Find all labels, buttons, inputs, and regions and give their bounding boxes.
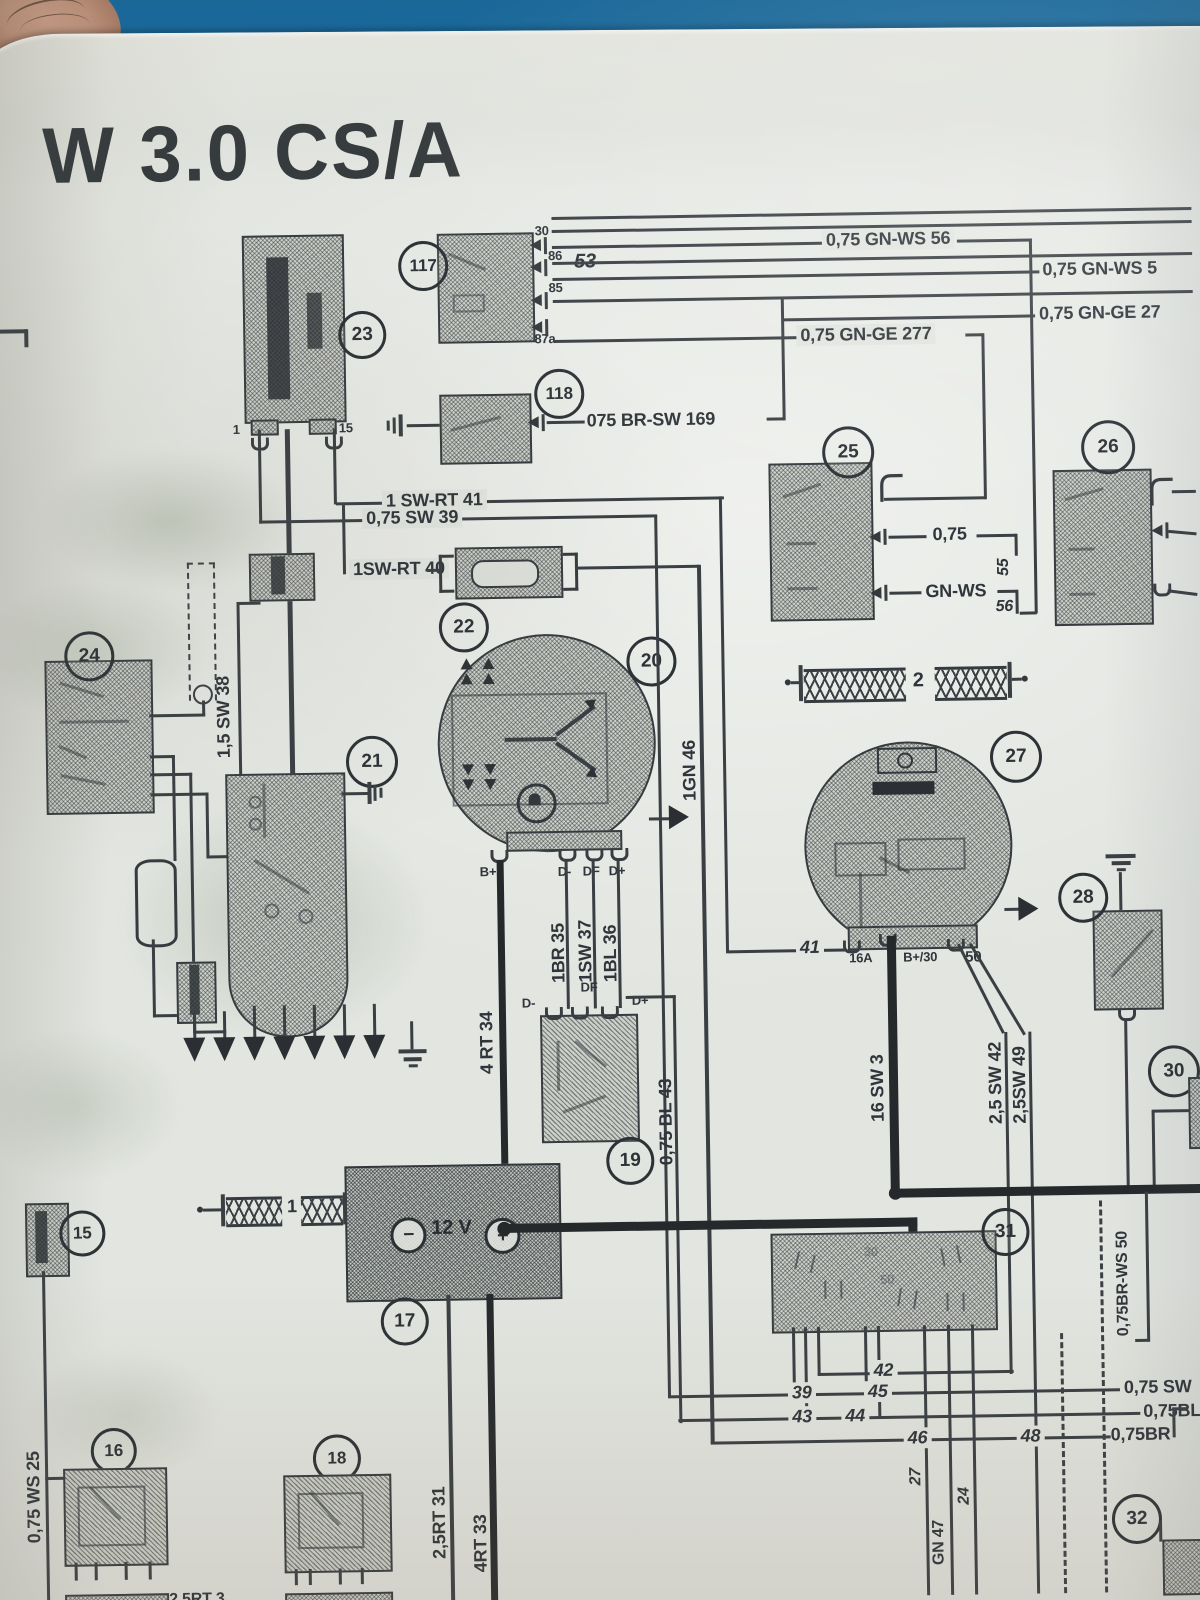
- hook-connector-icon: [875, 469, 906, 505]
- photo-of-wiring-diagram: W 3.0 CS/A 23 1 15 117 30 86 85 87a 53: [0, 0, 1200, 1600]
- plug-bar: [884, 585, 887, 601]
- ground-triangle-icon: [669, 805, 689, 829]
- spark-arrow-icon: [243, 1037, 265, 1061]
- internal-prong: [897, 1288, 918, 1309]
- battery-voltage: 12 V: [431, 1216, 472, 1240]
- wire: [1172, 490, 1196, 493]
- wire: [889, 591, 921, 595]
- spark-arrow-icon: [213, 1037, 235, 1061]
- internal-detail: [249, 796, 262, 809]
- fuse-bracket: [221, 1194, 225, 1226]
- wire-thick: [887, 936, 900, 1198]
- component-number-32: 32: [1112, 1494, 1163, 1545]
- wire: [0, 329, 27, 333]
- wire: [342, 504, 346, 574]
- ground-icon: [404, 1057, 422, 1061]
- wire: [547, 421, 585, 425]
- wire: [553, 290, 1193, 303]
- wire: [193, 1012, 196, 1040]
- wire-label: 0,75 GN-GE 277: [796, 323, 936, 346]
- wire-number-46: 46: [904, 1427, 932, 1448]
- wire-label: 4RT 33: [469, 1486, 491, 1572]
- component-number-15: 15: [59, 1210, 106, 1257]
- wire: [783, 314, 1035, 321]
- dashed-wire: [1099, 1200, 1108, 1592]
- wire-label: 1,5 SW 38: [212, 642, 235, 758]
- wire-number-56: 56: [996, 598, 1014, 616]
- wire-label: 0,75: [932, 524, 967, 546]
- terminal-faint-50: 50: [880, 1272, 894, 1287]
- wire-number-42: 42: [869, 1360, 897, 1381]
- wire: [1124, 1020, 1130, 1192]
- wire: [552, 242, 827, 249]
- winding-arrow-icon: [460, 658, 472, 669]
- connector-core: [189, 965, 200, 1015]
- wire-label: 16 SW 3: [866, 1038, 888, 1122]
- terminal-label-df: DF: [580, 979, 597, 994]
- wire-label: 0,75BR: [1110, 1423, 1170, 1445]
- wire-number-45: 45: [864, 1381, 892, 1402]
- wire: [1012, 678, 1022, 681]
- wire-label: 2,5SW 49: [1008, 1036, 1030, 1124]
- wire: [626, 995, 676, 999]
- winding-arrow-icon: [461, 673, 473, 684]
- connector-core: [35, 1211, 48, 1263]
- wire: [1154, 1109, 1189, 1113]
- wire: [407, 424, 440, 428]
- wire-label: 1BL 36: [599, 898, 621, 982]
- terminal-label-bplus: B+: [480, 864, 497, 879]
- wire-label: 2,5RT 31: [428, 1451, 451, 1559]
- wire: [781, 297, 786, 420]
- ground-icon: [1112, 861, 1131, 865]
- wire: [1015, 590, 1018, 614]
- component-19-regulator: [540, 1014, 640, 1144]
- spark-arrow-icon: [273, 1036, 295, 1060]
- wire: [172, 755, 177, 861]
- terminal-label-dminus: D-: [522, 995, 536, 1010]
- wire-label: 4 RT 34: [476, 988, 498, 1074]
- ground-icon: [399, 414, 403, 436]
- wire-number-27: 27: [907, 1447, 926, 1485]
- wire: [313, 1005, 317, 1038]
- plug-arrow-icon: [531, 294, 542, 306]
- component-number-31: 31: [981, 1208, 1030, 1257]
- winding-arrow-icon: [483, 673, 495, 684]
- wire: [236, 602, 242, 776]
- terminal-label-bplus30: B+/30: [903, 949, 937, 965]
- plug-arrow-icon: [530, 239, 541, 251]
- wire: [341, 792, 367, 795]
- internal-detail: [897, 838, 965, 871]
- internal-prong: [824, 1281, 842, 1299]
- component-number-17: 17: [380, 1297, 429, 1346]
- wire: [253, 1006, 257, 1039]
- wire: [719, 496, 729, 953]
- wire: [373, 1004, 377, 1037]
- wire: [283, 1005, 287, 1038]
- component-number-19: 19: [606, 1137, 655, 1186]
- internal-detail: [77, 1486, 146, 1547]
- dashed-wire: [1060, 1333, 1067, 1593]
- wire: [575, 565, 699, 570]
- ground-icon: [1106, 854, 1136, 858]
- wire-label: GN 47: [930, 1499, 949, 1565]
- wire: [203, 1208, 221, 1211]
- wire-label: 0,75 GN-WS 5: [1042, 258, 1157, 281]
- terminal-label-16a: 16A: [849, 950, 872, 965]
- wire-label: 0,75BR-WS 50: [1113, 1196, 1133, 1336]
- wire: [818, 1370, 1014, 1376]
- component-117-relay: [437, 232, 536, 344]
- component-26: [1053, 469, 1154, 627]
- fuse-22-slot: [471, 559, 539, 588]
- internal-detail: [1069, 593, 1095, 596]
- wire: [678, 1412, 1140, 1422]
- wire-label: 0,75 GN-GE 27: [1039, 301, 1161, 324]
- plug-arrow-icon: [1151, 524, 1162, 536]
- wire-number-39: 39: [788, 1382, 816, 1403]
- page-title: W 3.0 CS/A: [42, 105, 465, 202]
- wire: [551, 207, 1191, 220]
- wire-number-48: 48: [1017, 1425, 1045, 1446]
- wire-number-55: 55: [995, 542, 1014, 576]
- wire: [981, 333, 987, 499]
- wire: [150, 773, 192, 777]
- wire-number-44: 44: [841, 1405, 869, 1426]
- wire-number-43: 43: [788, 1406, 816, 1427]
- plug-bar: [544, 237, 547, 254]
- fuse-bracket: [343, 1192, 347, 1224]
- wire-label: 2,5 SW 42: [984, 1036, 1006, 1124]
- wire: [427, 569, 441, 572]
- wire: [1172, 1407, 1175, 1437]
- ground-icon: [409, 1064, 418, 1067]
- internal-bar: [872, 781, 934, 795]
- clipped-wire-label: 2,5RT 3: [169, 1590, 225, 1600]
- component-number-20: 20: [626, 636, 677, 687]
- terminal-label-85: 85: [548, 280, 562, 295]
- wire: [1145, 1192, 1150, 1342]
- internal-detail: [787, 542, 817, 545]
- wire: [95, 1562, 98, 1580]
- wire: [125, 1562, 128, 1580]
- ground-icon: [379, 788, 382, 798]
- internal-prong: [946, 1293, 964, 1311]
- wire: [339, 1568, 342, 1584]
- terminal-label-1: 1: [233, 422, 240, 437]
- coil-leg: [251, 419, 279, 435]
- plug-bar: [544, 259, 547, 276]
- terminal-clip: [601, 1006, 619, 1019]
- wire: [189, 773, 195, 963]
- ground-icon: [393, 417, 396, 433]
- plug-arrow-icon: [528, 416, 539, 428]
- wire: [193, 1030, 226, 1034]
- wire: [343, 1004, 347, 1037]
- ground-icon: [399, 1049, 427, 1053]
- connector-core: [271, 556, 286, 594]
- component-25: [768, 462, 874, 622]
- wire: [1135, 1339, 1149, 1342]
- wire: [309, 1569, 312, 1585]
- component-number-23: 23: [338, 311, 387, 360]
- fuse-lead-dot: [1022, 676, 1028, 682]
- wire-label: 0,75 SW 39: [362, 506, 462, 529]
- wire: [889, 535, 927, 539]
- internal-detail: [249, 818, 262, 831]
- wire: [202, 701, 205, 716]
- wire-label: 1BR 35: [547, 899, 569, 983]
- ground-icon: [373, 785, 376, 801]
- terminal-label-87a: 87a: [534, 331, 555, 346]
- plug-arrow-icon: [530, 261, 541, 273]
- ground-triangle-icon: [1018, 896, 1038, 920]
- fuse-22-bracket: [563, 553, 579, 591]
- wire-label: 0,75 SW: [1124, 1376, 1192, 1398]
- wire: [150, 792, 208, 796]
- terminal-label-30: 30: [535, 223, 549, 238]
- wire: [553, 336, 798, 343]
- plug-arrow-icon: [870, 587, 881, 599]
- wire: [1168, 530, 1196, 535]
- component-21-distributor: [225, 772, 349, 1038]
- wire: [1159, 1522, 1162, 1542]
- schematic-layer: W 3.0 CS/A 23 1 15 117 30 86 85 87a 53: [0, 0, 1200, 1600]
- wire-label: 1GN 46: [678, 709, 700, 801]
- wire: [236, 602, 260, 605]
- fuse-22-bracket: [439, 555, 455, 593]
- component-number-27: 27: [990, 730, 1043, 783]
- wire: [977, 534, 1017, 538]
- fuse-2-band: [935, 666, 1008, 701]
- internal-detail: [1069, 548, 1095, 551]
- wire-thick: [507, 1217, 917, 1232]
- ground-icon: [1117, 868, 1126, 871]
- wire-label: 0,75 GN-WS 56: [822, 228, 955, 251]
- component-23-ignition-coil: [242, 234, 347, 424]
- wire: [410, 1021, 413, 1049]
- component-30-box: [1188, 1077, 1200, 1149]
- wire-thick: [285, 429, 295, 775]
- component-number-21: 21: [346, 735, 399, 788]
- wire: [971, 1325, 978, 1595]
- spark-arrow-icon: [363, 1035, 385, 1059]
- wire: [223, 1011, 226, 1039]
- fuse-2-band: [804, 668, 907, 704]
- wire-label: 0,75 WS 25: [22, 1415, 45, 1543]
- plug-bar: [883, 529, 886, 545]
- component-number-118: 118: [534, 369, 585, 420]
- wire-number-24: 24: [955, 1467, 974, 1505]
- coil-core: [307, 293, 323, 349]
- wire-number-41: 41: [796, 937, 824, 958]
- wire: [361, 1568, 364, 1584]
- terminal-clip: [571, 1007, 589, 1020]
- coil-core: [266, 257, 290, 399]
- terminal-clip: [545, 1007, 563, 1020]
- wire-label: 075 BR-SW 169: [587, 408, 716, 431]
- component-28: [1092, 909, 1164, 1010]
- clipped-component: [65, 1593, 169, 1600]
- wire: [152, 939, 156, 1017]
- winding-arrow-icon: [482, 658, 494, 669]
- rotor-lamp-dot: [529, 793, 541, 805]
- fuse-2-label: 2: [913, 669, 924, 692]
- plug-arrow-icon: [869, 531, 880, 543]
- internal-prong: [940, 1245, 961, 1266]
- fuse-bracket: [799, 665, 803, 701]
- wire-label: 0,75 BL 43: [655, 1053, 678, 1165]
- wire-label: 1SW 37: [574, 898, 596, 982]
- component-number-22: 22: [439, 602, 490, 653]
- wire: [817, 1327, 821, 1375]
- terminal-label-15: 15: [339, 420, 353, 435]
- component-32-box: [1162, 1539, 1200, 1596]
- plug-bar: [545, 292, 548, 309]
- ground-icon: [387, 421, 390, 431]
- component-number-26: 26: [1081, 420, 1136, 475]
- spark-arrow-icon: [333, 1035, 355, 1059]
- spark-arrow-icon: [303, 1036, 325, 1060]
- wire: [295, 1569, 298, 1585]
- spark-arrow-icon: [183, 1038, 205, 1062]
- wire: [1119, 872, 1123, 910]
- capacitor: [135, 859, 178, 948]
- wire: [24, 329, 28, 347]
- wire: [205, 792, 209, 858]
- wire: [45, 1477, 65, 1480]
- internal-detail: [787, 587, 817, 590]
- wire: [1020, 611, 1037, 614]
- wire: [697, 565, 714, 1444]
- ground-icon: [367, 782, 371, 804]
- fuse-1-band: [226, 1196, 282, 1227]
- fuse-1-label: 1: [287, 1196, 297, 1217]
- terminal-faint-30: 30: [864, 1244, 878, 1259]
- wire: [1167, 589, 1197, 596]
- relay-internal: [453, 294, 485, 313]
- internal-detail: [297, 1492, 364, 1549]
- wire: [668, 1388, 1120, 1398]
- wire: [957, 238, 1032, 242]
- wire-label: GN-WS: [925, 580, 986, 602]
- wire: [552, 270, 1039, 281]
- wire: [206, 855, 228, 858]
- wire: [1152, 1110, 1156, 1190]
- plug-bar: [542, 414, 545, 431]
- wire: [1014, 534, 1017, 556]
- wire: [75, 1563, 78, 1581]
- terminal-label-86: 86: [548, 248, 562, 263]
- clipped-component: [285, 1592, 393, 1600]
- wire: [149, 1561, 152, 1579]
- wire-thick: [893, 1184, 1200, 1198]
- wire: [149, 714, 205, 718]
- fuse-1-band: [301, 1195, 343, 1226]
